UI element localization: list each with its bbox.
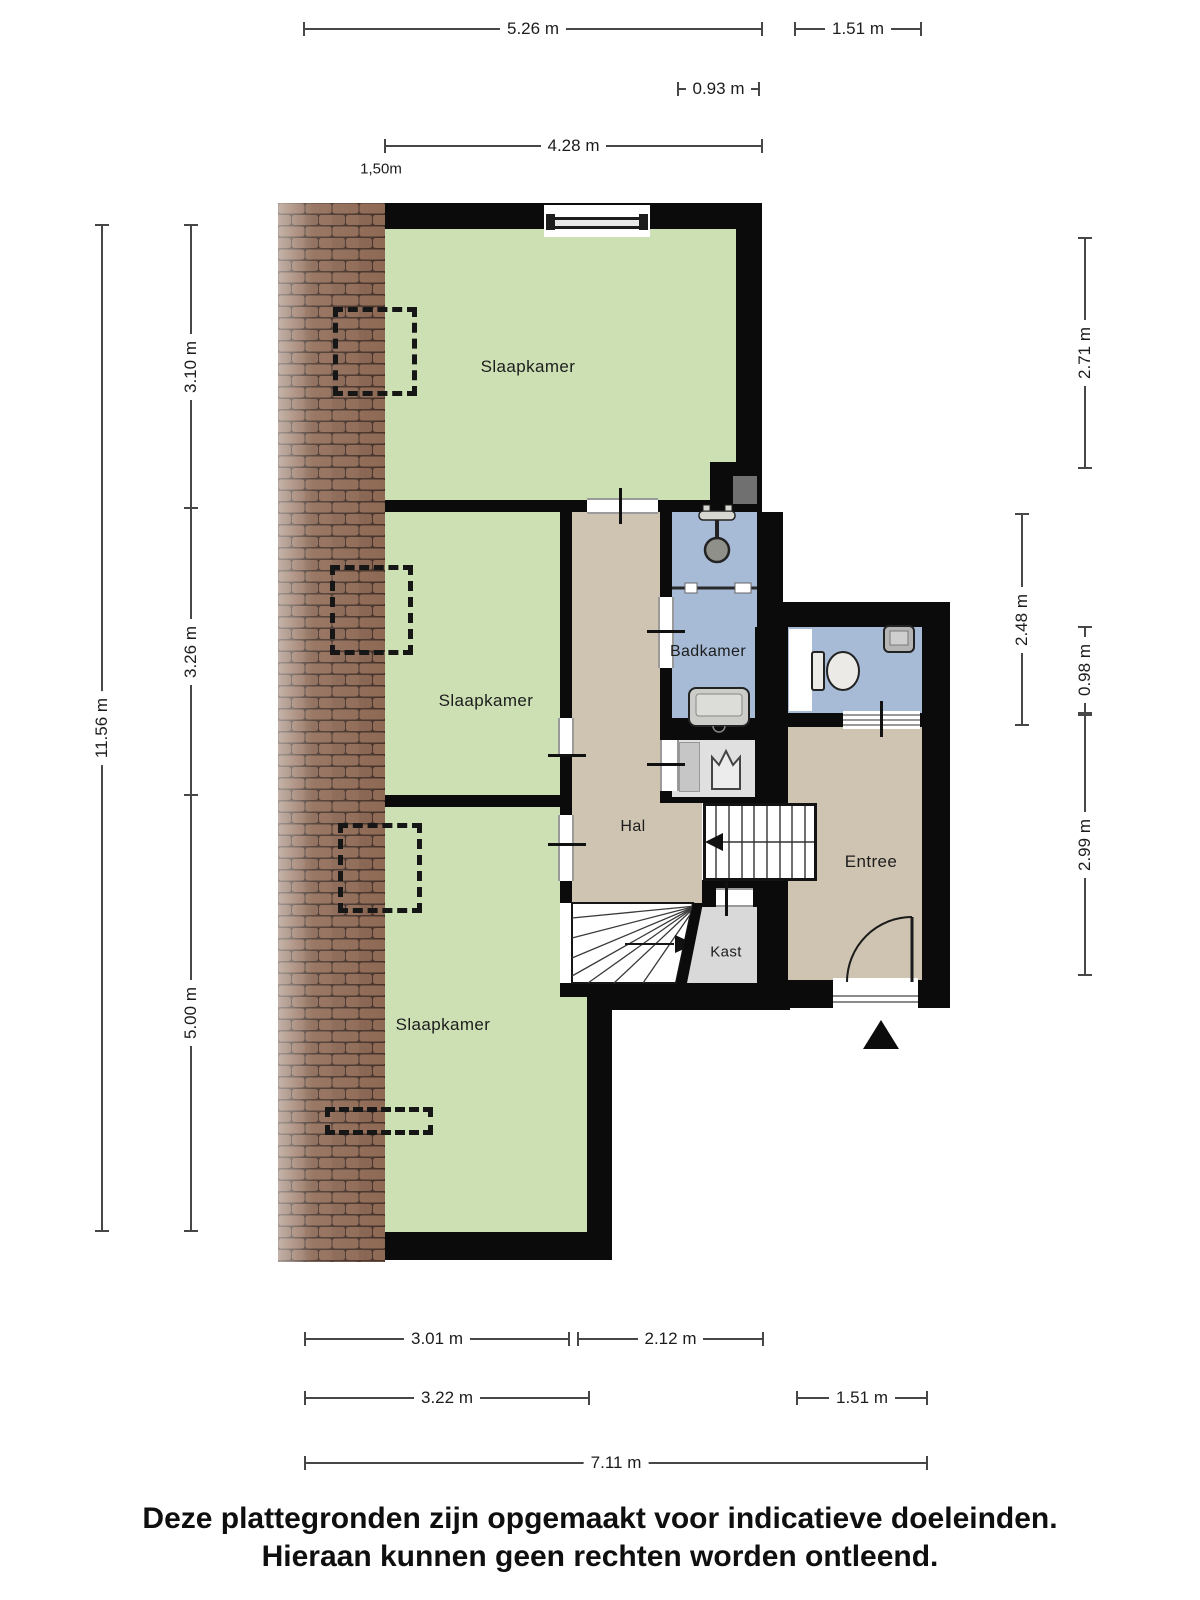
dimension-line [678, 88, 759, 90]
dimension-tick [796, 1391, 798, 1405]
bedroom-bottom-floor-ext [560, 997, 587, 1232]
dimension-tick [304, 1332, 306, 1346]
door-tick [647, 630, 685, 633]
dimension-tick [577, 1332, 579, 1346]
dimension-tick [568, 1332, 570, 1346]
dimension-tick [304, 1456, 306, 1470]
dimension-line [304, 28, 762, 30]
wall-bedroom-right-lower [587, 997, 612, 1260]
stairs-winder-icon [572, 903, 696, 983]
dimension-label: 5.26 m [500, 19, 566, 39]
dimension-tick [184, 794, 198, 796]
dimension-tick [926, 1391, 928, 1405]
dimension-label: 1.51 m [825, 19, 891, 39]
door-bedroom-middle [558, 718, 574, 757]
dimension-tick [1078, 712, 1092, 714]
wall-right-upper [736, 203, 762, 462]
dimension-label: 7.11 m [584, 1453, 649, 1473]
door-tick [548, 754, 586, 757]
dimension-line [385, 145, 762, 147]
dimension-tick [303, 22, 305, 36]
dimension-tick [920, 22, 922, 36]
dimension-line [1084, 238, 1086, 468]
dimension-tick [794, 22, 796, 36]
wall-bathroom-bottom [672, 718, 757, 740]
dimension-label: 4.28 m [541, 136, 607, 156]
dimension-tick [588, 1391, 590, 1405]
dimension-label: 11.56 m [92, 691, 112, 765]
front-door-opening [833, 978, 918, 1010]
dimension-tick [761, 22, 763, 36]
dimension-tick [184, 224, 198, 226]
roof-window-outline [338, 823, 422, 913]
washroom-door-leaf [679, 742, 700, 792]
door-tick [548, 843, 586, 846]
dimension-tick [677, 82, 679, 96]
dimension-line [190, 225, 192, 508]
door-bedroom-top [587, 498, 658, 514]
dimension-tick [926, 1456, 928, 1470]
dimension-tick [184, 507, 198, 509]
dimension-tick [762, 1332, 764, 1346]
dimension-tick [1078, 467, 1092, 469]
dimension-tick [1078, 237, 1092, 239]
floorplan-canvas: 5.26 m1.51 m0.93 m4.28 m3.01 m2.12 m3.22… [0, 0, 1200, 1600]
disclaimer-line1: Deze plattegronden zijn opgemaakt voor i… [0, 1500, 1200, 1538]
window-glass [548, 217, 646, 229]
dimension-tick [761, 139, 763, 153]
dimension-tick [1078, 714, 1092, 716]
bedroom-top-floor [385, 229, 736, 500]
disclaimer: Deze plattegronden zijn opgemaakt voor i… [0, 1500, 1200, 1576]
dimension-tick [184, 794, 198, 796]
dimension-line [101, 225, 103, 1231]
room-label: Kast [710, 944, 742, 961]
disclaimer-line2: Hieraan kunnen geen rechten worden ontle… [0, 1538, 1200, 1576]
dimension-label: 3.26 m [181, 619, 201, 685]
chimney-duct [733, 476, 757, 504]
dimension-label: 2.71 m [1075, 320, 1095, 386]
dimension-label: 0.93 m [686, 79, 752, 99]
door-toilet [789, 629, 812, 711]
door-tick [880, 701, 883, 737]
annotation-label: 1,50m [360, 161, 402, 178]
dimension-tick [384, 139, 386, 153]
wall-bottom-exterior [385, 1232, 612, 1260]
wall-diagonal-closet [676, 903, 703, 983]
wall-mid-horizontal [385, 500, 762, 512]
dimension-tick [1015, 513, 1029, 515]
roof-window-outline [325, 1107, 433, 1135]
dimension-label: 3.22 m [414, 1388, 480, 1408]
dimension-tick [758, 82, 760, 96]
roof-window-outline [333, 307, 417, 396]
door-tick [725, 878, 728, 916]
dimension-line [578, 1338, 763, 1340]
window-frame-right [639, 214, 648, 230]
dimension-line [305, 1338, 569, 1340]
dimension-tick [184, 507, 198, 509]
bathroom-floor [672, 512, 757, 718]
dimension-tick [95, 1230, 109, 1232]
dimension-label: 5.00 m [181, 980, 201, 1046]
dimension-tick [1078, 974, 1092, 976]
wall-right-exterior [922, 602, 950, 1008]
door-bedroom-bottom [558, 815, 574, 881]
window-frame-left [546, 214, 555, 230]
dimension-tick [95, 224, 109, 226]
dimension-line [305, 1397, 589, 1399]
dimension-label: 2.12 m [638, 1329, 704, 1349]
dimension-line [305, 1462, 927, 1464]
door-tick [647, 763, 685, 766]
door-tick [619, 488, 622, 524]
staircase-straight [703, 803, 817, 881]
closet-floor [685, 907, 757, 983]
dimension-line [190, 795, 192, 1231]
dimension-label: 3.01 m [404, 1329, 470, 1349]
dimension-tick [184, 1230, 198, 1232]
dimension-label: 1.51 m [829, 1388, 895, 1408]
dimension-label: 2.99 m [1075, 812, 1095, 878]
door-closet [716, 888, 753, 907]
dimension-line [190, 508, 192, 795]
dimension-label: 2.48 m [1012, 587, 1032, 653]
dimension-line [795, 28, 921, 30]
dimension-tick [1015, 724, 1029, 726]
dimension-line [1084, 627, 1086, 713]
dimension-label: 3.10 m [181, 334, 201, 400]
dimension-tick [304, 1391, 306, 1405]
roof-window-outline [330, 565, 413, 655]
dimension-label: 0.98 m [1075, 637, 1095, 703]
dimension-line [1084, 715, 1086, 975]
dimension-line [1021, 514, 1023, 725]
dimension-tick [1078, 626, 1092, 628]
entrance-arrow-icon [863, 1020, 899, 1049]
dimension-line [797, 1397, 927, 1399]
wall-between-bedrooms [385, 795, 572, 807]
wall-closet-bottom [600, 983, 790, 1010]
